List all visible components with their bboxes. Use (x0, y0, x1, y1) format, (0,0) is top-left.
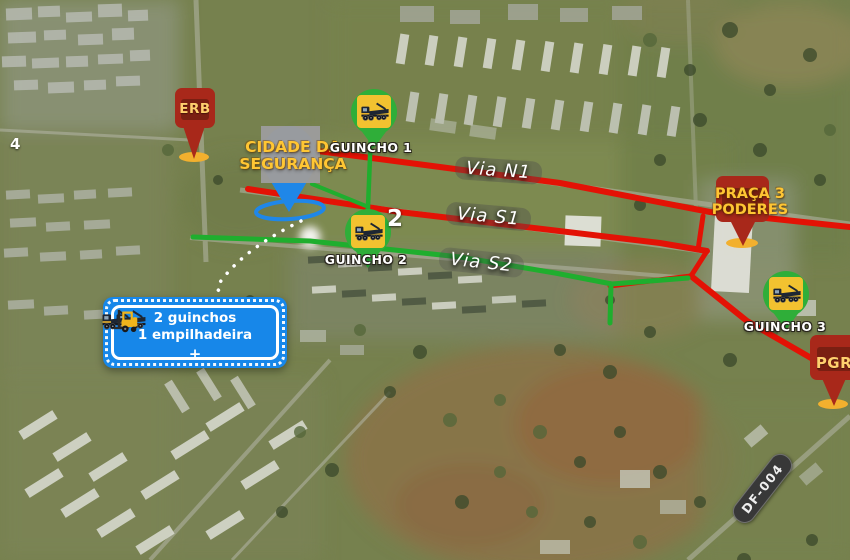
praca-line2: PODERES (698, 202, 802, 218)
route-connector-n1-s1 (698, 216, 703, 250)
route-s2-stub (610, 284, 611, 323)
callout-line2: 1 empilhadeira (138, 327, 252, 344)
guincho-2-badge: 2 (387, 206, 403, 232)
callout-inner: 2 guinchos 1 empilhadeira + (111, 305, 279, 360)
annotated-satellite-map: 4 ERB CIDADE DA SEGURANÇA PRAÇA 3 PODERE… (0, 0, 850, 560)
praca-tres-poderes-label: PRAÇA 3 PODERES (698, 186, 802, 218)
road-number-label: 4 (10, 135, 20, 153)
guincho-3-label: GUINCHO 3 (729, 319, 841, 334)
dotted-connector (218, 221, 301, 291)
guincho-1-label: GUINCHO 1 (315, 140, 427, 155)
pgr-marker[interactable] (810, 335, 850, 409)
resources-callout[interactable]: 2 guinchos 1 empilhadeira + (103, 297, 287, 368)
callout-text: 2 guinchos 1 empilhadeira (138, 310, 252, 344)
forklift-icon (114, 308, 142, 334)
pgr-label: PGR (812, 354, 850, 372)
cidade-line2: SEGURANÇA (235, 156, 351, 173)
erb-label: ERB (175, 101, 215, 117)
praca-line1: PRAÇA 3 (698, 186, 802, 202)
guincho-2-label: GUINCHO 2 (310, 252, 422, 267)
plus-sign: + (189, 345, 202, 363)
annotation-layer (0, 0, 850, 560)
erb-marker[interactable] (175, 88, 215, 162)
callout-icons: + (186, 345, 205, 367)
callout-line1: 2 guinchos (138, 310, 252, 327)
